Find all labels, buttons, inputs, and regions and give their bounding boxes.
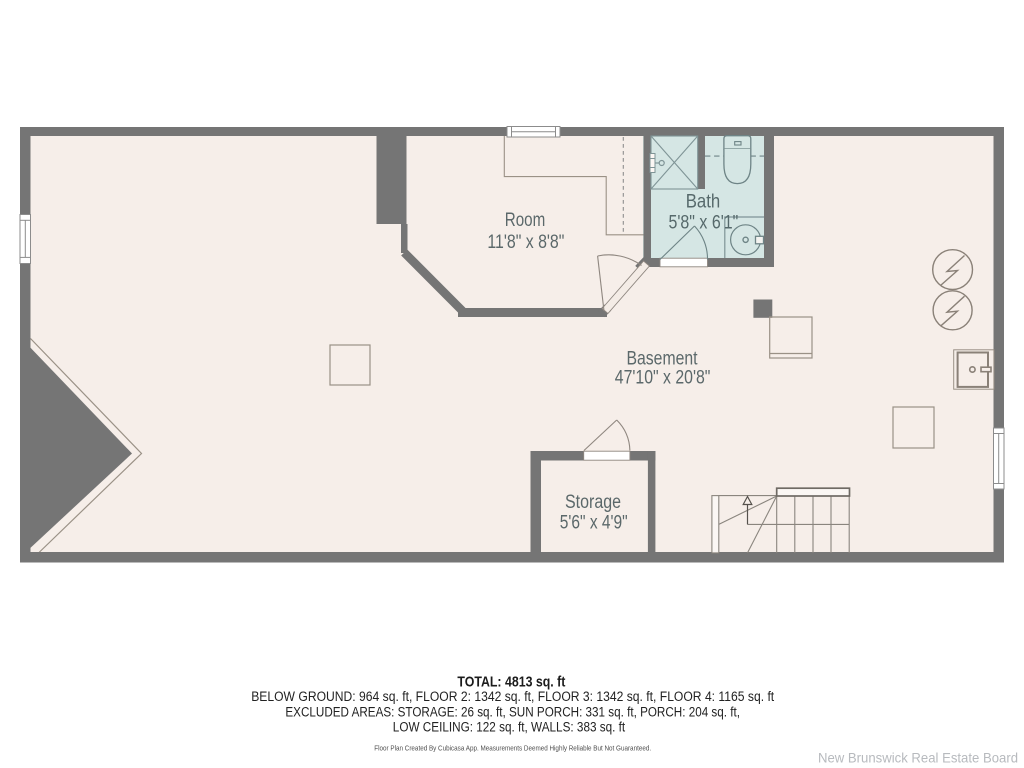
svg-text:Basement: Basement	[627, 348, 699, 369]
svg-text:Floor Plan Created By Cubicasa: Floor Plan Created By Cubicasa App. Meas…	[374, 743, 651, 752]
svg-text:47'10" x 20'8": 47'10" x 20'8"	[615, 368, 711, 389]
svg-text:EXCLUDED AREAS: STORAGE: 26 sq: EXCLUDED AREAS: STORAGE: 26 sq. ft, SUN …	[285, 705, 740, 720]
svg-text:Bath: Bath	[686, 192, 721, 213]
svg-text:5'6" x 4'9": 5'6" x 4'9"	[560, 512, 628, 533]
svg-text:Room: Room	[505, 210, 546, 231]
svg-text:5'8" x 6'1": 5'8" x 6'1"	[669, 212, 739, 233]
svg-text:BELOW GROUND: 964 sq. ft, FLOO: BELOW GROUND: 964 sq. ft, FLOOR 2: 1342 …	[251, 689, 774, 704]
svg-text:Storage: Storage	[565, 492, 621, 513]
svg-text:TOTAL: 4813 sq. ft: TOTAL: 4813 sq. ft	[457, 674, 565, 691]
svg-text:LOW CEILING: 122 sq. ft, WALLS: LOW CEILING: 122 sq. ft, WALLS: 383 sq. …	[393, 720, 626, 735]
svg-text:New Brunswick Real Estate Boar: New Brunswick Real Estate Board	[818, 750, 1018, 766]
svg-text:11'8" x 8'8": 11'8" x 8'8"	[487, 232, 564, 253]
